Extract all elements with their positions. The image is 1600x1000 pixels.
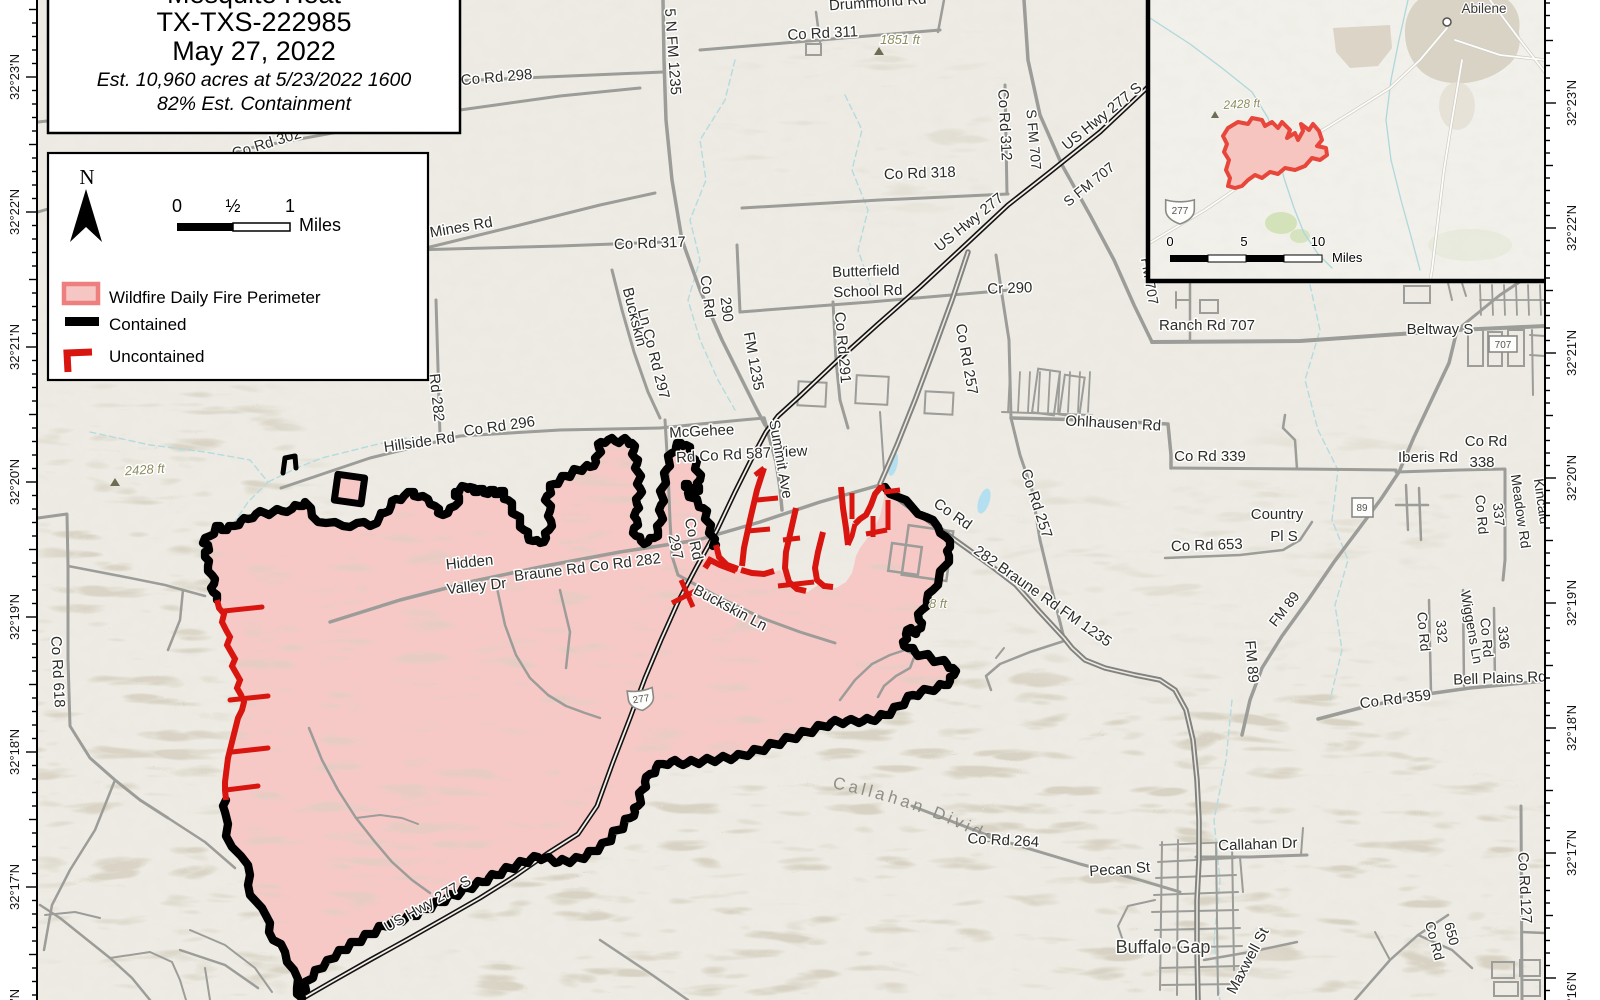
svg-text:336: 336 — [1495, 625, 1513, 650]
svg-text:½: ½ — [225, 196, 240, 216]
svg-text:McGehee: McGehee — [669, 421, 735, 441]
svg-text:5: 5 — [1240, 234, 1247, 249]
svg-text:32°22'N: 32°22'N — [1564, 205, 1579, 251]
svg-text:Miles: Miles — [1332, 250, 1363, 265]
svg-text:Bell Plains Rd: Bell Plains Rd — [1453, 668, 1547, 688]
svg-text:89: 89 — [1356, 503, 1368, 514]
svg-text:8 ft: 8 ft — [929, 596, 948, 611]
svg-text:32°18'N: 32°18'N — [1564, 705, 1579, 751]
svg-text:32°21'N: 32°21'N — [7, 324, 22, 370]
svg-text:277: 277 — [1172, 206, 1189, 217]
svg-text:32°20'N: 32°20'N — [1564, 455, 1579, 501]
svg-text:Co Rd 339: Co Rd 339 — [1174, 448, 1246, 465]
svg-text:Miles: Miles — [299, 215, 341, 235]
svg-text:Wildfire Daily Fire Perimeter: Wildfire Daily Fire Perimeter — [109, 288, 321, 307]
svg-text:290: 290 — [717, 296, 737, 323]
svg-text:32°19'N: 32°19'N — [7, 594, 22, 640]
svg-text:32°19'N: 32°19'N — [1564, 580, 1579, 626]
svg-text:337: 337 — [1490, 502, 1508, 527]
svg-text:1: 1 — [285, 196, 295, 216]
svg-text:School Rd: School Rd — [833, 282, 903, 301]
svg-text:Pl S: Pl S — [1270, 528, 1298, 545]
svg-text:32°23'N: 32°23'N — [7, 54, 22, 100]
svg-text:277: 277 — [632, 693, 650, 706]
svg-text:Co Rd 317: Co Rd 317 — [614, 234, 686, 253]
svg-text:32°20'N: 32°20'N — [7, 459, 22, 505]
svg-text:32°21'N: 32°21'N — [1564, 330, 1579, 376]
svg-text:32°22'N: 32°22'N — [7, 189, 22, 235]
svg-text:Abilene: Abilene — [1461, 1, 1506, 16]
svg-text:10: 10 — [1311, 234, 1325, 249]
svg-text:707: 707 — [1495, 340, 1512, 351]
svg-text:Cr 290: Cr 290 — [987, 279, 1033, 298]
svg-text:Co Rd 653: Co Rd 653 — [1171, 536, 1243, 555]
svg-text:Ranch Rd 707: Ranch Rd 707 — [1159, 317, 1255, 334]
svg-text:32°16'N: 32°16'N — [1564, 972, 1579, 1000]
svg-text:32°17'N: 32°17'N — [7, 864, 22, 910]
svg-text:32°23'N: 32°23'N — [1564, 80, 1579, 126]
svg-text:0: 0 — [172, 196, 182, 216]
svg-text:Country: Country — [1251, 506, 1304, 523]
svg-text:Beltway S: Beltway S — [1407, 321, 1474, 338]
svg-text:Buffalo Gap: Buffalo Gap — [1116, 937, 1211, 957]
svg-text:Co Rd 318: Co Rd 318 — [884, 164, 956, 183]
svg-text:2428 ft: 2428 ft — [1222, 96, 1261, 112]
svg-text:1851 ft: 1851 ft — [880, 32, 921, 47]
svg-text:Co Rd: Co Rd — [1465, 433, 1508, 450]
svg-text:Est. 10,960 acres at 5/23/2022: Est. 10,960 acres at 5/23/2022 1600 — [97, 69, 412, 91]
svg-text:32°17'N: 32°17'N — [1564, 830, 1579, 876]
svg-text:Contained: Contained — [109, 315, 187, 334]
svg-text:Butterfield: Butterfield — [832, 262, 900, 281]
svg-text:Uncontained: Uncontained — [109, 347, 204, 366]
svg-text:2428 ft: 2428 ft — [123, 461, 166, 479]
svg-text:N: N — [79, 165, 94, 189]
svg-text:32°16'N: 32°16'N — [7, 989, 22, 1000]
svg-text:32°18'N: 32°18'N — [7, 729, 22, 775]
svg-text:Iberis Rd: Iberis Rd — [1398, 449, 1458, 466]
svg-text:0: 0 — [1166, 234, 1173, 249]
svg-text:338: 338 — [1469, 454, 1494, 471]
svg-text:332: 332 — [1433, 619, 1451, 644]
svg-text:82% Est. Containment: 82% Est. Containment — [157, 93, 353, 115]
svg-text:May 27, 2022: May 27, 2022 — [172, 36, 336, 66]
svg-text:Callahan Dr: Callahan Dr — [1218, 835, 1298, 855]
svg-text:TX-TXS-222985: TX-TXS-222985 — [156, 7, 351, 37]
